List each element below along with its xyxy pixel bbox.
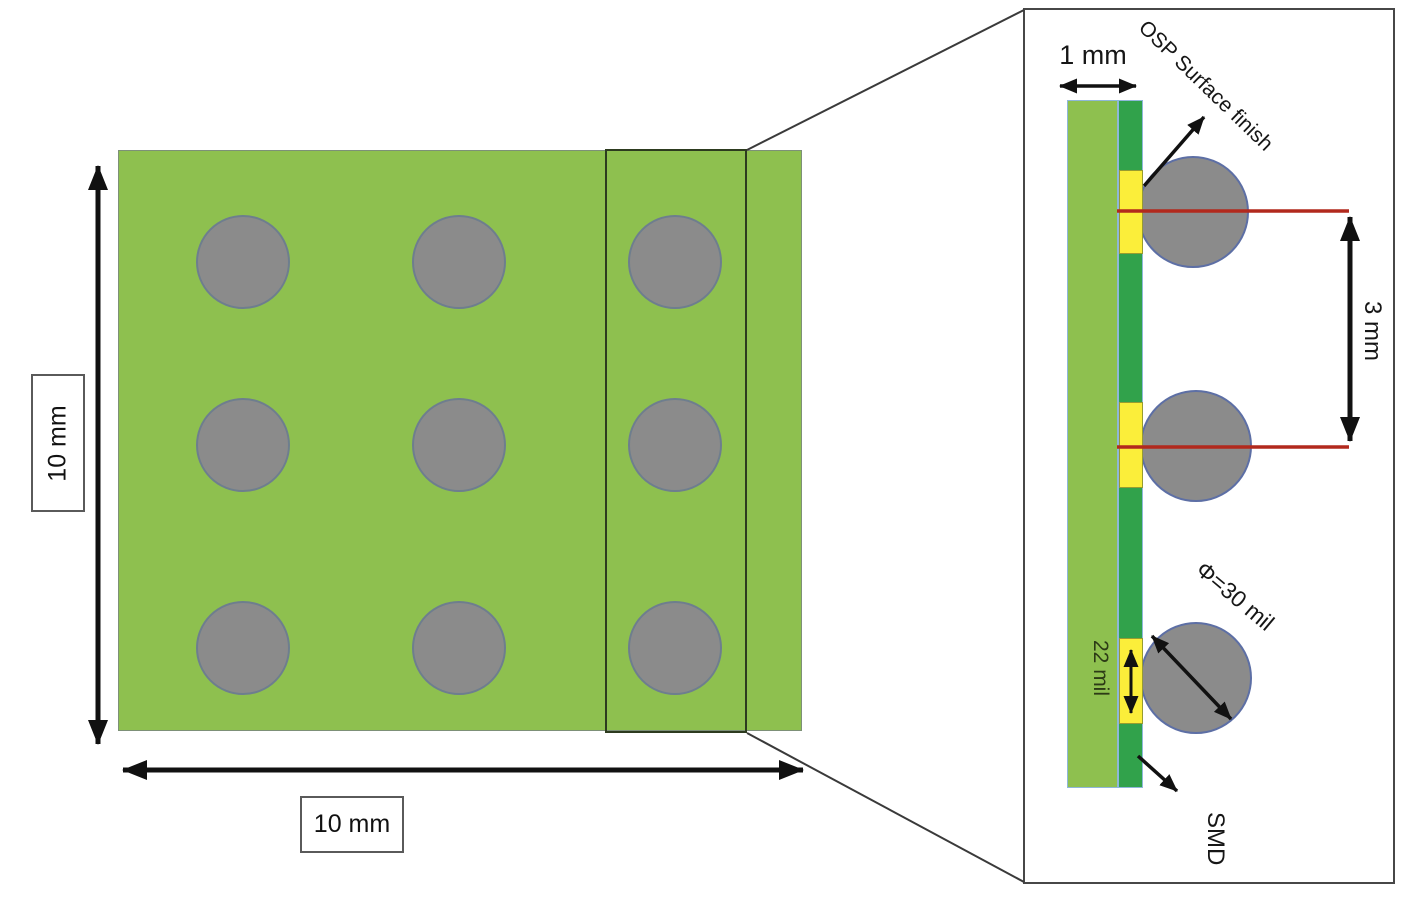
copper-pad-osp [1119, 402, 1143, 488]
pitch-label: 3 mm [1358, 301, 1386, 361]
solder-pad-circle [412, 215, 506, 309]
board-width-label-box: 10 mm [300, 796, 404, 853]
zoom-connector-bottom-line [747, 733, 1024, 882]
zoom-region-outline [605, 149, 747, 733]
copper-pad-osp [1119, 638, 1143, 724]
zoom-connector-top-line [747, 10, 1024, 150]
solder-pad-circle [412, 601, 506, 695]
solder-ball [1140, 622, 1252, 734]
board-height-label: 10 mm [44, 405, 73, 481]
board-height-label-box: 10 mm [31, 374, 85, 512]
thickness-label: 1 mm [1048, 40, 1138, 71]
pcb-diagram-canvas: 10 mm 10 mm [0, 0, 1404, 902]
solder-pad-circle [196, 601, 290, 695]
smd-label: SMD [1201, 812, 1229, 865]
pad-size-label: 22 mil [1088, 640, 1112, 696]
copper-pad-osp [1119, 170, 1143, 254]
solder-ball [1140, 390, 1252, 502]
solder-ball [1137, 156, 1249, 268]
solder-pad-circle [412, 398, 506, 492]
solder-pad-circle [196, 398, 290, 492]
board-width-label: 10 mm [314, 810, 390, 839]
solder-pad-circle [196, 215, 290, 309]
